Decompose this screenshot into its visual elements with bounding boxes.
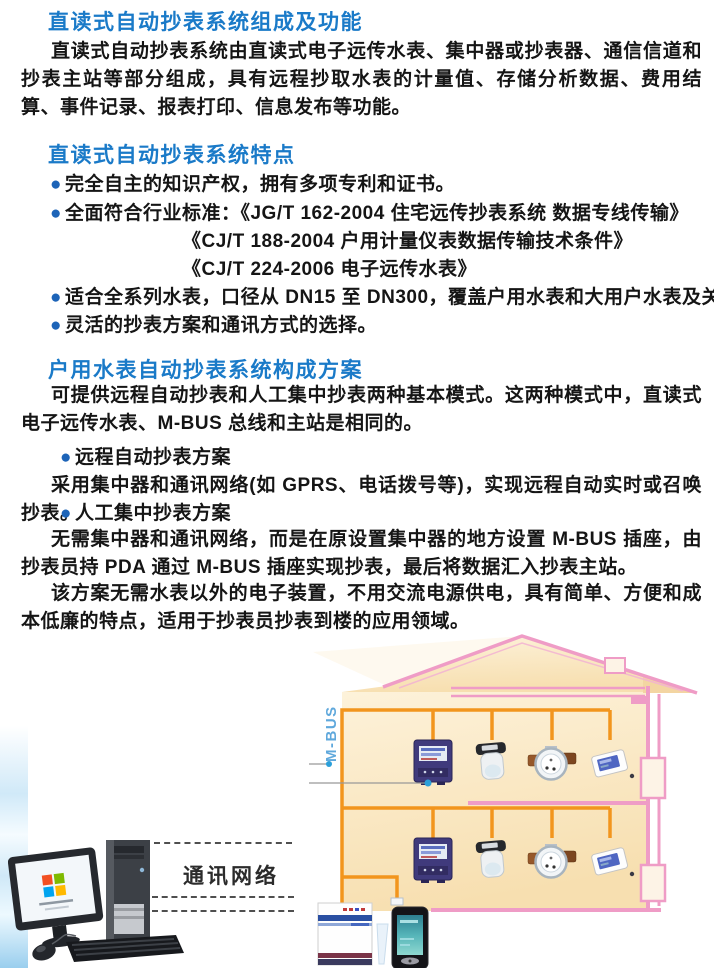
tower-icon — [106, 840, 150, 940]
section1-heading: 直读式自动抄表系统组成及功能 — [48, 6, 363, 36]
section3-heading: 户用水表自动抄表系统构成方案 — [48, 354, 363, 384]
eaves-block — [631, 696, 647, 704]
standard-line: 《CJ/T 188-2004 户用计量仪表数据传输技术条件》 — [182, 228, 633, 256]
feature-text: 全面符合行业标准：《JG/T 162-2004 住宅远传抄表系统 数据专线传输》 — [65, 203, 689, 224]
duct-box — [641, 865, 665, 901]
bullet-icon: ● — [60, 503, 72, 524]
stylus-icon — [377, 924, 388, 964]
standard-line: 《CJ/T 224-2006 电子远传水表》 — [182, 256, 477, 284]
feature-text: 完全自主的知识产权，拥有多项专利和证书。 — [65, 174, 455, 195]
dashed-line — [152, 910, 294, 912]
scheme-item: ●远程自动抄表方案 — [60, 444, 231, 472]
pointer-dot-icon — [326, 761, 332, 767]
duct-box — [641, 758, 665, 798]
bullet-icon: ● — [50, 315, 62, 336]
section2-heading: 直读式自动抄表系统特点 — [48, 139, 296, 169]
scheme-item: ●人工集中抄表方案 — [60, 500, 231, 528]
mbus-socket-icon — [391, 898, 403, 905]
bullet-icon: ● — [60, 447, 72, 468]
electric-meter-icon — [414, 740, 452, 785]
feature-text: 灵活的抄表方案和通讯方式的选择。 — [65, 315, 377, 336]
network-label-group: 通讯网络 — [152, 838, 294, 918]
feature-item: ●完全自主的知识产权，拥有多项专利和证书。 — [50, 171, 455, 199]
bullet-icon: ● — [50, 203, 62, 224]
section3-paragraph: 可提供远程自动抄表和人工集中抄表两种基本模式。这两种模式中，直读式电子远传水表、… — [21, 382, 702, 438]
chimney-icon — [605, 658, 625, 673]
feature-item: ●适合全系列水表，口径从 DN15 至 DN300，覆盖户用水表和大用户水表及关… — [50, 284, 714, 312]
feature-item: ●灵活的抄表方案和通讯方式的选择。 — [50, 312, 377, 340]
pda-icon — [392, 907, 428, 968]
feature-item: ●全面符合行业标准：《JG/T 162-2004 住宅远传抄表系统 数据专线传输… — [50, 200, 689, 228]
pointer-dot-icon — [425, 780, 432, 787]
monitor-icon — [8, 847, 106, 952]
bullet-icon: ● — [50, 287, 62, 308]
dashed-line — [152, 896, 294, 898]
dashed-line — [154, 842, 292, 844]
scheme-paragraph: 无需集中器和通讯网络，而是在原设置集中器的地方设置 M-BUS 插座，由抄表员持… — [21, 526, 702, 582]
section1-paragraph: 直读式自动抄表系统由直读式电子远传水表、集中器或抄表器、通信信道和抄表主站等部分… — [21, 38, 702, 122]
document-page: 直读式自动抄表系统组成及功能 直读式自动抄表系统由直读式电子远传水表、集中器或抄… — [0, 0, 714, 968]
house-icon: M-BUS — [295, 622, 713, 968]
network-label: 通讯网络 — [183, 860, 279, 890]
scheme-title: 人工集中抄表方案 — [75, 503, 231, 524]
scheme-title: 远程自动抄表方案 — [75, 447, 231, 468]
bullet-icon: ● — [50, 174, 62, 195]
mbus-label: M-BUS — [323, 705, 340, 762]
feature-text: 适合全系列水表，口径从 DN15 至 DN300，覆盖户用水表和大用户水表及关口… — [65, 287, 714, 308]
concentrator-icon — [318, 903, 372, 965]
